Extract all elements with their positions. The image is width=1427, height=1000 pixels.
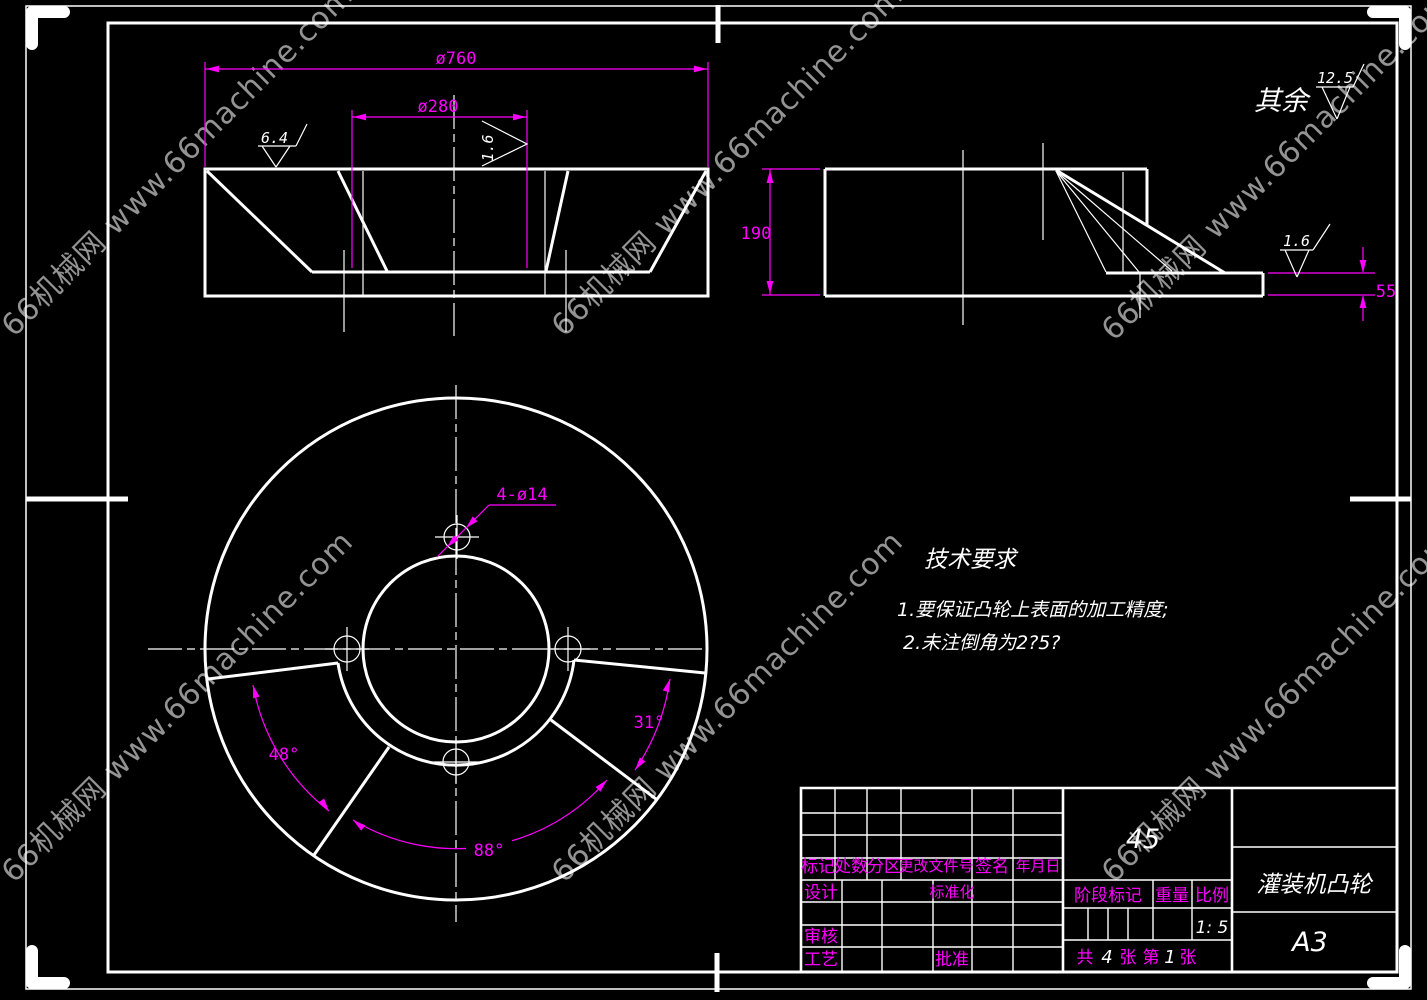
dim-angle-88: 88° [474,841,505,861]
dim-dia-760: ø760 [436,49,477,69]
svg-text:6.4: 6.4 [261,129,288,147]
dim-angle-31: 31° [634,713,665,733]
corner-mark-bottom-left [32,951,64,983]
svg-text:共: 共 [1077,948,1094,968]
tech-req-title: 技术要求 [924,547,1019,573]
qiyu-label: 其余 [1254,86,1311,117]
bolt-holes [325,515,590,784]
svg-text:张: 张 [1180,948,1197,968]
tb-change-doc: 更改文件号 [898,857,973,875]
svg-text:1.6: 1.6 [1283,232,1310,250]
tb-review: 审核 [804,927,838,947]
tb-stage-mark: 阶段标记 [1074,886,1142,906]
drawing-canvas: 66机械网 www.66machine.com 66机械网 www.66mach… [0,0,1427,1000]
svg-text:12.5: 12.5 [1317,69,1353,87]
dim-holes: 4-ø14 [496,485,547,505]
corner-mark-top-left [32,12,64,44]
tb-material: 45 [1126,824,1160,855]
roughness-1-6-rotated: 1.6 [479,121,527,166]
tb-sign: 签名 [975,857,1009,877]
tb-part-name: 灌装机凸轮 [1257,872,1374,898]
watermark-text: 66机械网 www.66machine.com [0,524,360,889]
tb-scale-value: 1: 5 [1196,918,1229,938]
corner-mark-bottom-right [1373,951,1405,983]
dim-angle-48: 48° [269,745,300,765]
svg-text:4: 4 [1101,947,1112,968]
tech-req-item2: 2.未注倒角为2?5? [903,632,1060,654]
dim-dia-280: ø280 [418,97,459,117]
tb-zone: 分区 [867,857,901,877]
watermark-text: 66机械网 www.66machine.com [0,0,360,344]
watermark-layer: 66机械网 www.66machine.com 66机械网 www.66mach… [0,0,1427,890]
tech-requirements: 技术要求 1.要保证凸轮上表面的加工精度; 2.未注倒角为2?5? [897,547,1169,654]
roughness-1-6-side: 1.6 [1280,224,1330,277]
tb-standardize: 标准化 [929,883,974,901]
tech-req-item1: 1.要保证凸轮上表面的加工精度; [897,599,1169,621]
cad-drawing-sheet: 66机械网 www.66machine.com 66机械网 www.66mach… [0,0,1427,1000]
tb-weight: 重量 [1155,886,1189,906]
tb-approve: 批准 [935,950,969,970]
tb-scale: 比例 [1195,886,1229,906]
tb-design: 设计 [804,883,838,903]
dim-55: 55 [1376,282,1396,302]
tb-process: 工艺 [804,950,838,970]
tb-count: 处数 [834,857,868,877]
title-block: 标记 处数 分区 更改文件号 签名 年月日 设计 标准化 审核 工艺 批准 阶段… [801,788,1397,972]
tb-paper-size: A3 [1290,927,1328,958]
tb-date: 年月日 [1015,857,1060,875]
svg-text:1.6: 1.6 [479,134,497,161]
watermark-text: 66机械网 www.66machine.com [545,0,910,344]
svg-text:1: 1 [1164,947,1175,968]
roughness-6-4: 6.4 [258,124,307,167]
svg-text:第: 第 [1143,948,1160,968]
svg-text:张: 张 [1120,948,1137,968]
dim-190: 190 [741,224,772,244]
tb-mark: 标记 [801,857,835,877]
